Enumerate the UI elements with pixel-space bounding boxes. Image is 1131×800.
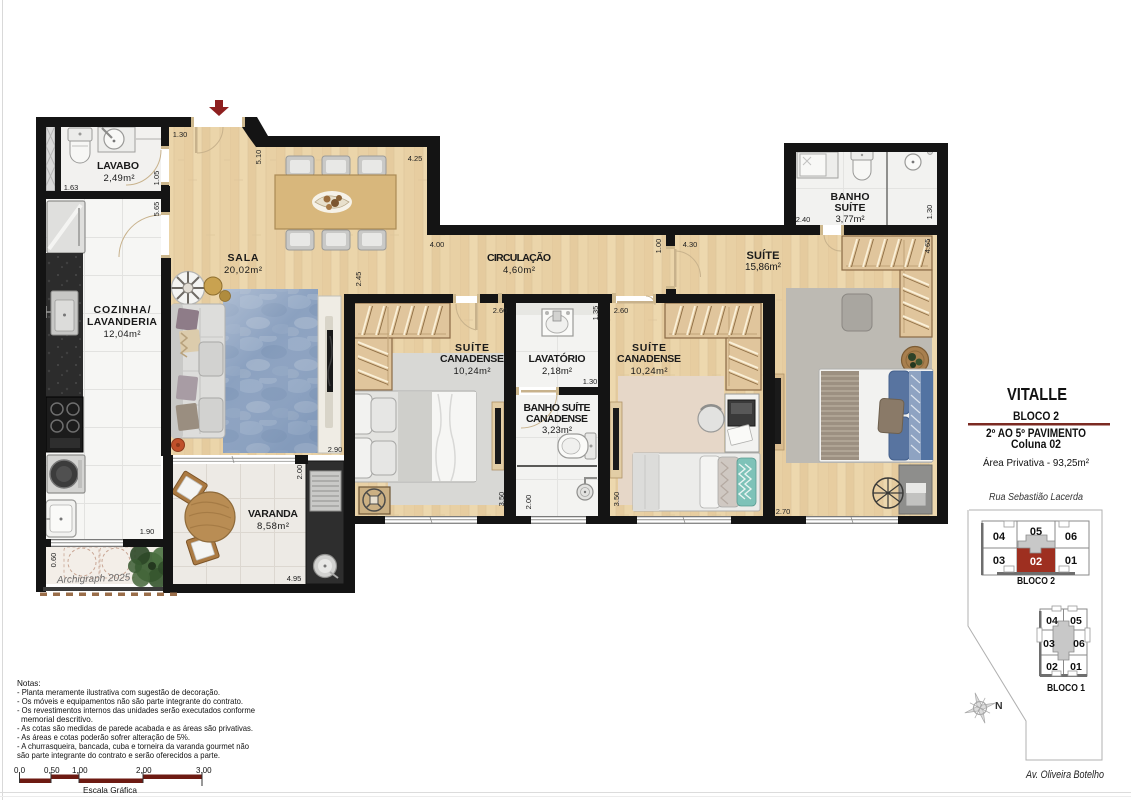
svg-text:N: N [995,700,1003,712]
svg-text:3,23m²: 3,23m² [542,425,572,436]
svg-text:LAVABO: LAVABO [97,160,139,172]
svg-text:01: 01 [1065,555,1077,567]
svg-text:CANADENSE: CANADENSE [617,353,681,365]
svg-text:1.30: 1.30 [173,130,188,139]
svg-text:- As cotas são medidas de pare: - As cotas são medidas de parede acabada… [17,724,253,733]
svg-text:3.50: 3.50 [497,492,506,507]
svg-text:BLOCO 2: BLOCO 2 [1017,576,1055,587]
svg-text:12,04m²: 12,04m² [104,329,141,340]
svg-text:10,24m²: 10,24m² [454,366,491,377]
svg-text:2,49m²: 2,49m² [104,173,135,184]
svg-text:BLOCO 1: BLOCO 1 [1047,683,1085,694]
svg-text:4.30: 4.30 [683,240,698,249]
svg-text:06: 06 [1073,638,1085,650]
svg-text:Notas:: Notas: [17,679,41,688]
svg-text:06: 06 [1065,531,1077,543]
svg-text:- As áreas e cotas poderão sof: - As áreas e cotas poderão sofrer altera… [17,733,190,742]
svg-text:CANADENSE: CANADENSE [440,353,504,365]
svg-text:- Os móveis e equipamentos não: - Os móveis e equipamentos não são parte… [17,697,243,706]
svg-text:2.00: 2.00 [524,495,533,510]
svg-text:2,18m²: 2,18m² [542,366,572,377]
svg-text:Área Privativa - 93,25m²: Área Privativa - 93,25m² [983,456,1089,469]
svg-text:Av. Oliveira Botelho: Av. Oliveira Botelho [1025,769,1104,781]
svg-text:1.35: 1.35 [591,306,600,321]
svg-text:1.30: 1.30 [583,377,598,386]
svg-text:15,86m²: 15,86m² [745,262,782,273]
svg-text:05: 05 [1030,526,1042,538]
svg-text:Escala Gráfica: Escala Gráfica [83,785,137,795]
svg-text:SUÍTE: SUÍTE [747,249,780,262]
svg-text:VARANDA: VARANDA [248,508,298,520]
svg-text:1.05: 1.05 [152,171,161,186]
svg-text:4.00: 4.00 [430,240,445,249]
svg-text:10,24m²: 10,24m² [631,366,668,377]
svg-text:CANADENSE: CANADENSE [526,413,588,425]
svg-text:VITALLE: VITALLE [1007,384,1067,404]
svg-text:CIRCULAÇÃO: CIRCULAÇÃO [487,251,551,264]
svg-text:20,02m²: 20,02m² [224,265,262,276]
svg-text:COZINHA/: COZINHA/ [94,304,151,316]
svg-text:2.60: 2.60 [493,306,508,315]
svg-text:3.00: 3.00 [196,766,212,775]
svg-text:0.60: 0.60 [49,553,58,568]
svg-text:2.70: 2.70 [776,507,791,516]
svg-text:01: 01 [1070,661,1082,673]
svg-text:1.30: 1.30 [925,205,934,220]
svg-text:1.00: 1.00 [654,239,663,254]
svg-text:3.50: 3.50 [612,492,621,507]
svg-text:03: 03 [1043,638,1055,650]
svg-text:5.10: 5.10 [254,150,263,165]
svg-text:2.00: 2.00 [295,465,304,480]
svg-text:- A churrasqueira, bancada, cu: - A churrasqueira, bancada, cuba e torne… [17,742,249,751]
svg-text:1.90: 1.90 [140,527,155,536]
svg-text:LAVATÓRIO: LAVATÓRIO [529,352,586,365]
svg-text:2,00: 2,00 [136,766,152,775]
svg-text:4.95: 4.95 [287,574,302,583]
svg-text:02: 02 [1030,556,1042,568]
svg-text:8,58m²: 8,58m² [257,521,289,532]
svg-text:memorial descritivo.: memorial descritivo. [21,715,93,724]
svg-text:Rua Sebastião Lacerda: Rua Sebastião Lacerda [989,492,1083,503]
svg-text:05: 05 [1070,615,1082,627]
svg-text:1.63: 1.63 [64,183,79,192]
svg-text:04: 04 [993,531,1006,543]
svg-text:SALA: SALA [228,252,259,264]
svg-text:2.60: 2.60 [614,306,629,315]
svg-text:3,77m²: 3,77m² [836,214,865,225]
svg-text:4,60m²: 4,60m² [503,265,535,276]
svg-text:são parte integrante do contra: são parte integrante do contrato e serão… [17,751,220,760]
svg-text:1,00: 1,00 [72,766,88,775]
svg-text:02: 02 [1046,661,1058,673]
svg-text:SUÍTE: SUÍTE [835,201,866,214]
svg-text:Coluna 02: Coluna 02 [1011,439,1061,451]
svg-text:0,50: 0,50 [44,766,60,775]
svg-text:- Os revestimentos internos da: - Os revestimentos internos das unidades… [17,706,255,715]
svg-text:04: 04 [1046,615,1058,627]
svg-text:2.45: 2.45 [354,272,363,287]
svg-text:2.90: 2.90 [328,445,343,454]
svg-text:2.40: 2.40 [796,215,811,224]
svg-text:4.25: 4.25 [408,154,423,163]
svg-text:LAVANDERIA: LAVANDERIA [87,316,157,328]
svg-text:BLOCO 2: BLOCO 2 [1013,411,1059,423]
svg-text:03: 03 [993,555,1005,567]
svg-text:4.65: 4.65 [923,239,932,254]
svg-text:5.65: 5.65 [152,202,161,217]
svg-text:- Planta meramente ilustrativa: - Planta meramente ilustrativa com suges… [17,688,220,697]
